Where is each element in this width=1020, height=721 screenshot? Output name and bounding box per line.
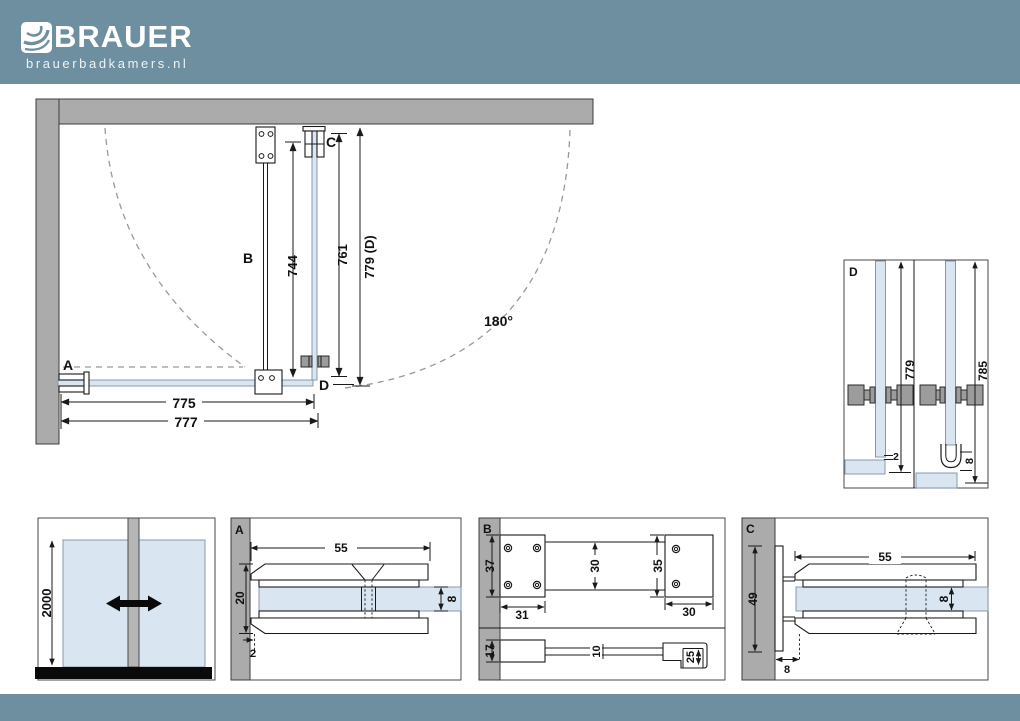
dim-c49-label: 49 xyxy=(746,592,760,606)
detail-b-glass-plate xyxy=(665,535,713,597)
door-swing-arc-left xyxy=(105,128,245,367)
label-c: C xyxy=(326,134,336,150)
detail-c-bottom-plate xyxy=(795,618,976,634)
dim-b35-label: 35 xyxy=(651,559,665,573)
detail-d-glass-left xyxy=(876,261,886,457)
dim-c8-offset-label: 8 xyxy=(784,664,790,676)
dim-744: 744 xyxy=(285,142,301,377)
swing-angle-label: 180° xyxy=(484,313,513,329)
dim-775-label: 775 xyxy=(172,395,196,411)
page: BRAUER brauerbadkamers.nl 180° xyxy=(0,0,1020,721)
dim-b10-label: 10 xyxy=(591,645,603,657)
detail-d-glass-right xyxy=(946,261,956,445)
dim-d785-label: 785 xyxy=(976,361,990,381)
door-glass-panel xyxy=(312,130,317,380)
dim-b10: 10 xyxy=(590,642,603,661)
label-d: D xyxy=(319,377,329,393)
detail-d-label: D xyxy=(849,265,858,279)
dim-a2-label: 2 xyxy=(250,648,256,660)
plan-view: 180° A B xyxy=(36,99,593,444)
detail-b-side-plate xyxy=(500,640,545,662)
detail-b-label: B xyxy=(483,522,492,536)
wall-left xyxy=(36,99,59,444)
detail-b-panel: B 37 xyxy=(479,518,725,680)
dim-b17-label: 17 xyxy=(483,644,497,658)
dim-779d: 779 (D) xyxy=(352,128,377,386)
label-b: B xyxy=(243,250,253,266)
detail-c-glass xyxy=(796,587,988,611)
detail-a-label: A xyxy=(235,523,244,537)
detail-c-label: C xyxy=(746,522,755,536)
technical-drawing: 180° A B xyxy=(0,0,1020,721)
dim-d-gap-label: 2 xyxy=(893,451,899,463)
dim-b30-plate-label: 30 xyxy=(682,605,696,619)
dim-2000-label: 2000 xyxy=(39,589,54,618)
dim-777: 777 xyxy=(61,413,318,430)
detail-c-panel: C 55 xyxy=(742,518,988,680)
dim-b30-bar-label: 30 xyxy=(588,559,602,573)
detail-a-glass xyxy=(259,587,461,611)
label-a: A xyxy=(63,357,73,373)
footer-bar xyxy=(0,694,1020,721)
front-view-panel: 2000 xyxy=(35,518,215,680)
detail-d-panel: D 779 2 xyxy=(844,260,990,488)
dim-a55-label: 55 xyxy=(334,541,348,555)
dim-761-label: 761 xyxy=(335,244,350,266)
door-swing-arc-right xyxy=(345,130,570,388)
detail-a-top-plate xyxy=(251,564,428,580)
front-view-floor xyxy=(35,667,212,679)
dim-c8-glass-label: 8 xyxy=(937,595,951,602)
dim-a20-label: 20 xyxy=(233,591,247,605)
detail-d-floor-left xyxy=(845,460,885,474)
dim-b37-label: 37 xyxy=(483,559,497,573)
dim-744-label: 744 xyxy=(285,254,300,276)
detail-a-bottom-plate xyxy=(251,618,428,634)
dim-761: 761 xyxy=(331,134,350,377)
dim-d779-label: 779 xyxy=(903,360,917,380)
detail-c-top-plate xyxy=(795,564,976,580)
front-view-post xyxy=(128,518,139,667)
wall-top xyxy=(36,99,593,124)
detail-a-panel: A 55 xyxy=(231,518,461,680)
dim-a8-label: 8 xyxy=(445,595,459,602)
dim-779d-label: 779 (D) xyxy=(362,235,377,278)
dim-b25: 25 xyxy=(685,650,699,665)
dim-b31-label: 31 xyxy=(515,608,529,622)
detail-c-offset-piece xyxy=(775,546,783,651)
dim-d-seal-label: 8 xyxy=(964,458,976,464)
dim-b25-label: 25 xyxy=(685,651,697,663)
dim-c55-label: 55 xyxy=(878,550,892,564)
detail-d-floor-right xyxy=(916,473,957,488)
stabilizer-bar xyxy=(255,127,282,394)
dim-777-label: 777 xyxy=(174,414,198,430)
